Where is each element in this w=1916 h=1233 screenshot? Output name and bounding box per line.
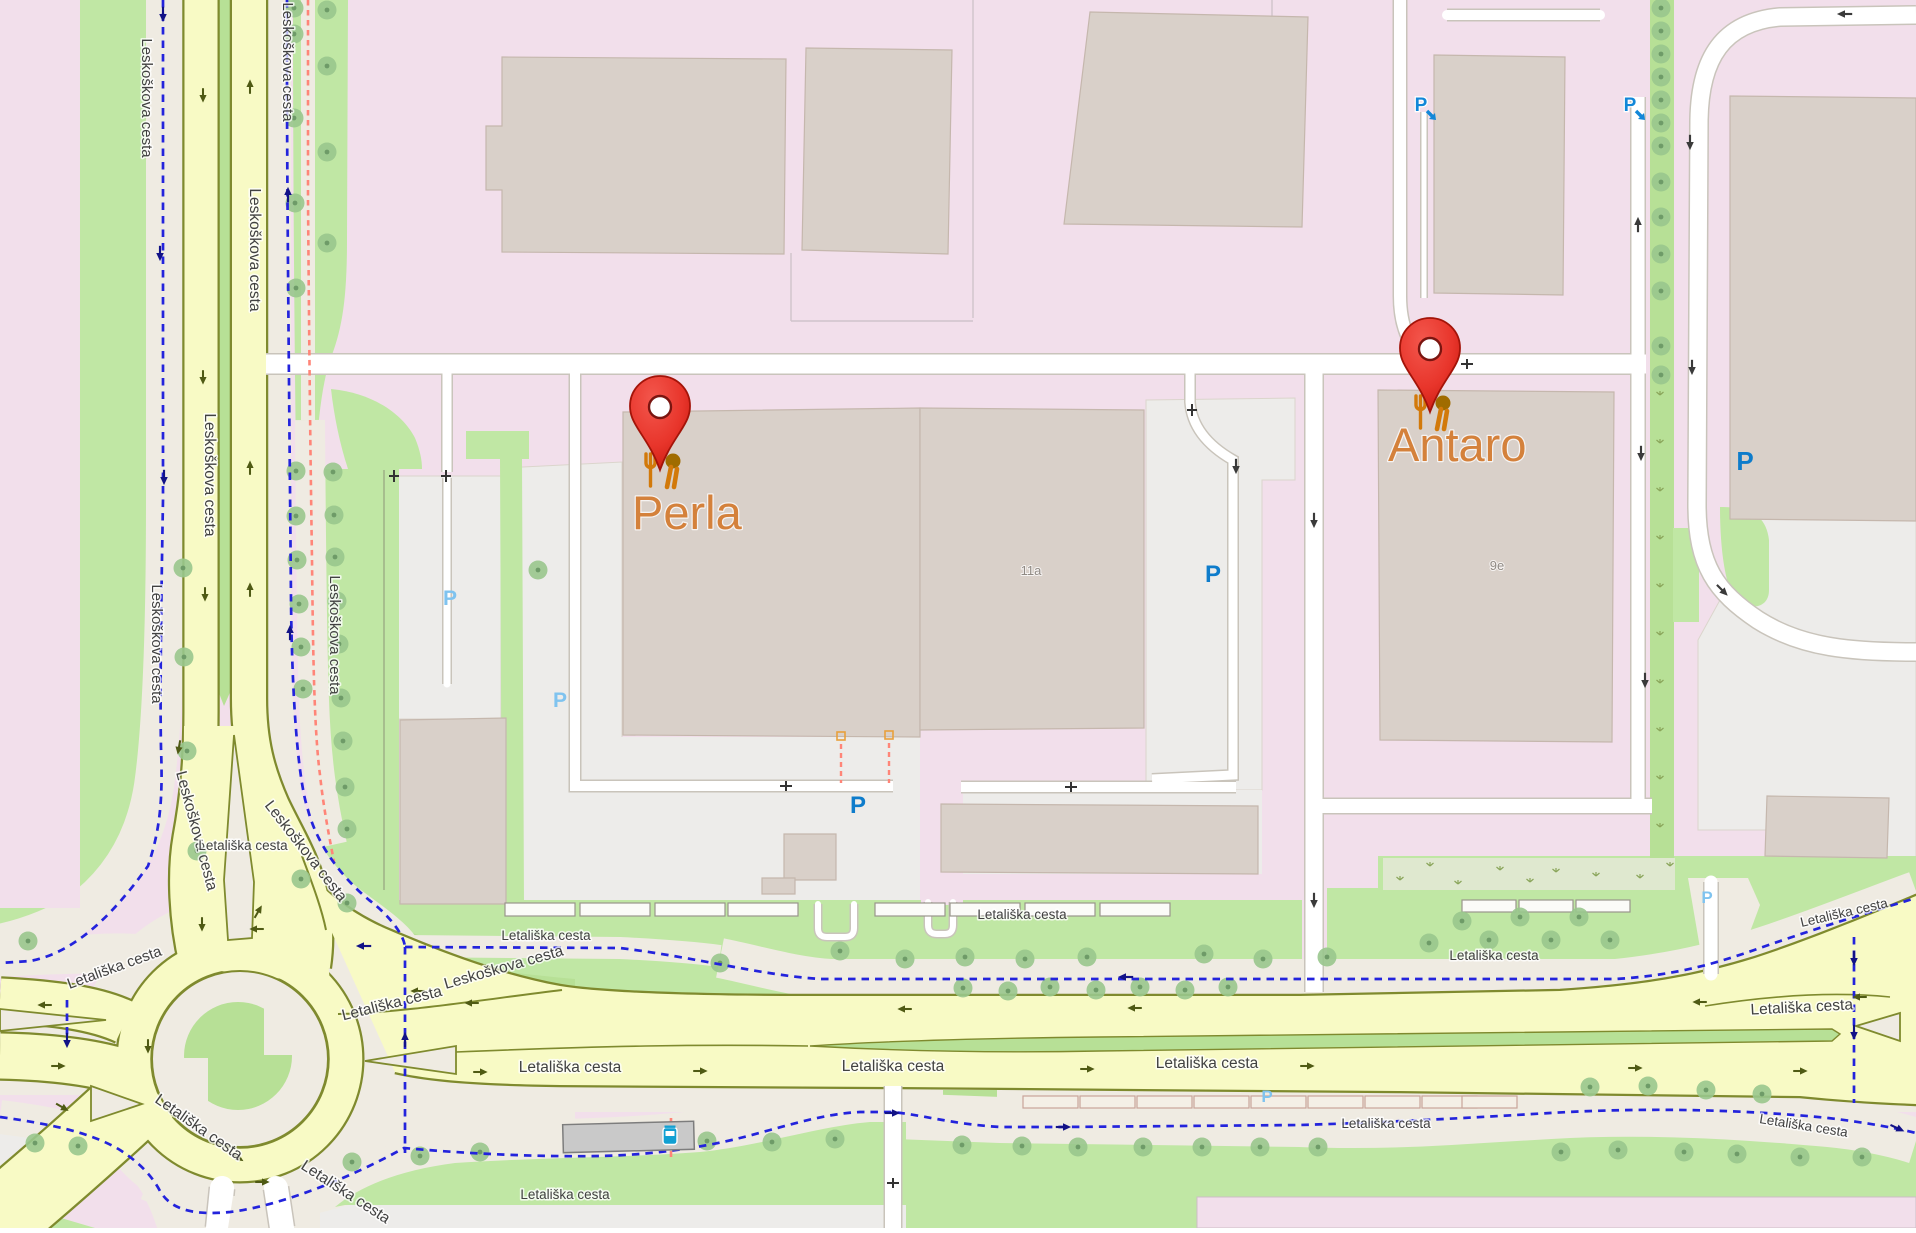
svg-text:Letališka cesta: Letališka cesta — [1449, 948, 1539, 963]
svg-text:Leskoškova cesta: Leskoškova cesta — [326, 575, 343, 695]
svg-text:Antaro: Antaro — [1388, 418, 1526, 471]
svg-text:9e: 9e — [1490, 558, 1504, 573]
svg-text:Letališka cesta: Letališka cesta — [977, 907, 1067, 922]
svg-text:P: P — [443, 587, 457, 610]
svg-text:P: P — [1415, 95, 1428, 116]
svg-text:P: P — [1736, 446, 1753, 476]
svg-text:Letališka cesta: Letališka cesta — [1341, 1116, 1431, 1131]
svg-text:Leskoškova cesta: Leskoškova cesta — [201, 413, 218, 537]
svg-text:Letališka cesta: Letališka cesta — [1156, 1055, 1259, 1072]
svg-text:P: P — [1205, 561, 1221, 588]
svg-text:Leskoškova cesta: Leskoškova cesta — [279, 2, 296, 122]
svg-text:Leskoškova cesta: Leskoškova cesta — [246, 188, 263, 312]
svg-text:Leskoškova cesta: Leskoškova cesta — [148, 584, 165, 704]
svg-text:Letališka cesta: Letališka cesta — [842, 1058, 945, 1075]
svg-text:P: P — [553, 689, 567, 712]
svg-text:P: P — [1624, 95, 1637, 116]
svg-text:P: P — [1261, 1087, 1272, 1106]
svg-text:Letališka cesta: Letališka cesta — [198, 838, 288, 853]
svg-text:Perla: Perla — [632, 486, 743, 539]
svg-text:Letališka cesta: Letališka cesta — [520, 1187, 610, 1202]
svg-text:P: P — [850, 792, 866, 819]
svg-text:Letališka cesta: Letališka cesta — [519, 1059, 622, 1076]
svg-text:11a: 11a — [1021, 563, 1042, 578]
svg-text:Leskoškova cesta: Leskoškova cesta — [138, 38, 155, 158]
svg-text:Letališka cesta: Letališka cesta — [501, 928, 591, 943]
svg-text:P: P — [1701, 888, 1712, 907]
